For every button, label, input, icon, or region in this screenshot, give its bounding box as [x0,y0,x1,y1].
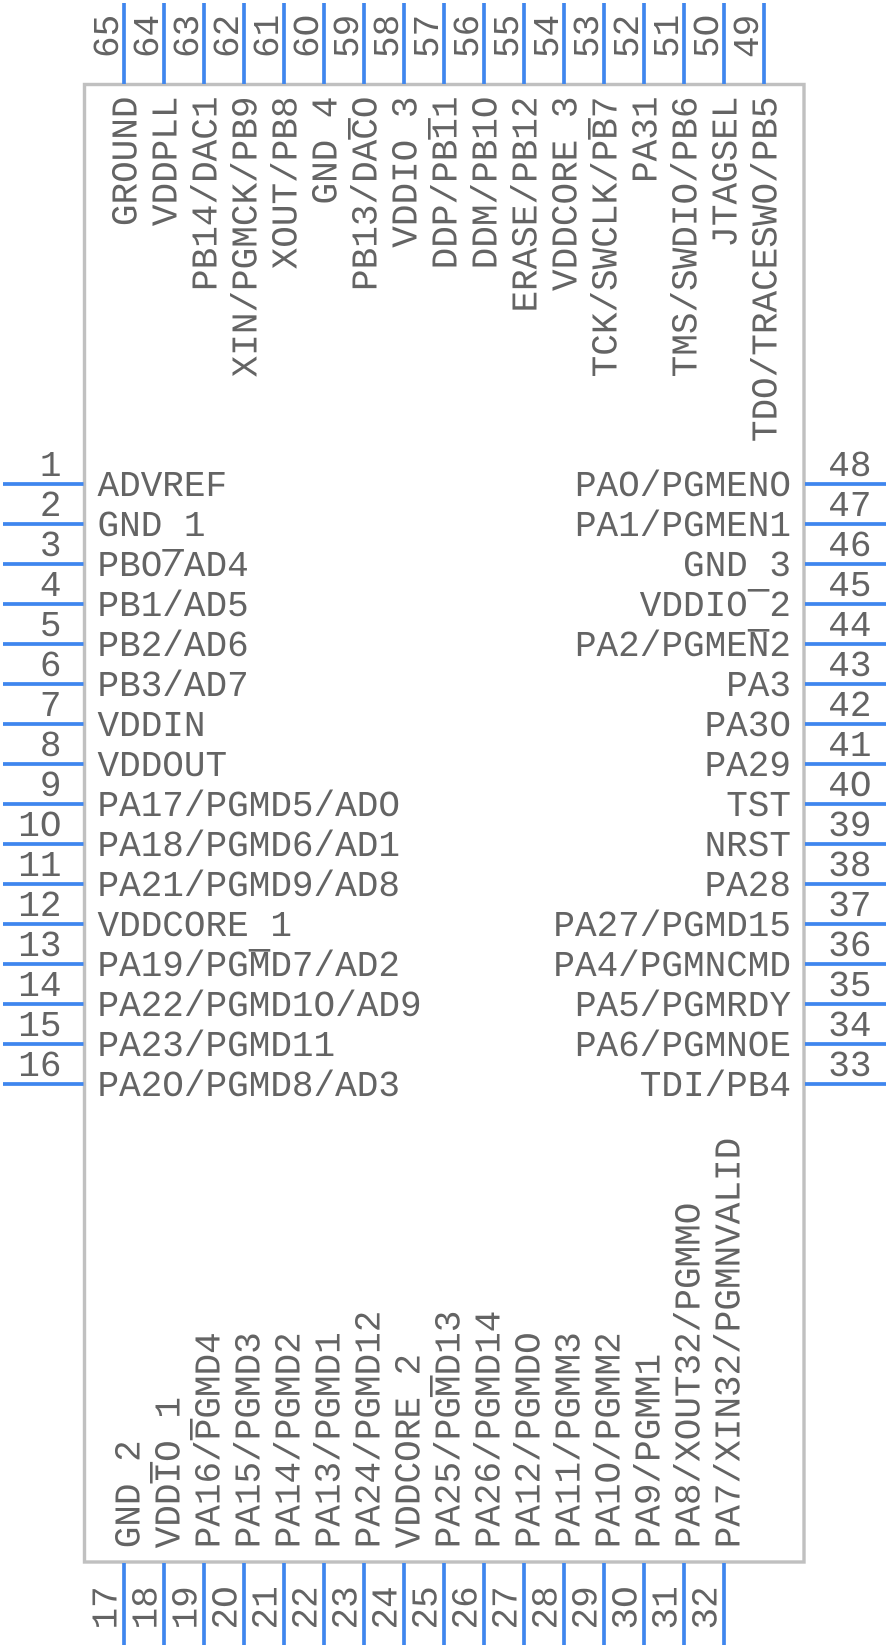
svg-text:TST: TST [726,786,791,827]
svg-text:PA12/PGMDO: PA12/PGMDO [510,1332,551,1548]
svg-text:62: 62 [208,15,249,58]
svg-text:4: 4 [40,566,62,607]
svg-text:12: 12 [18,886,61,927]
svg-text:65: 65 [88,15,129,58]
svg-text:PA31: PA31 [627,97,668,183]
svg-text:9: 9 [40,766,62,807]
svg-text:PA23/PGMD11: PA23/PGMD11 [98,1026,336,1067]
svg-text:49: 49 [728,15,769,58]
svg-text:VDDCORE 2: VDDCORE 2 [390,1354,431,1548]
svg-text:PB2/AD6: PB2/AD6 [98,626,249,667]
svg-text:6O: 6O [288,15,329,58]
svg-text:TCK/SWCLK/PB7: TCK/SWCLK/PB7 [587,97,628,378]
svg-text:8: 8 [40,726,62,767]
svg-text:64: 64 [128,15,169,58]
svg-text:59: 59 [328,15,369,58]
svg-text:57: 57 [408,15,449,58]
svg-text:PA19/PGMD7/AD2: PA19/PGMD7/AD2 [98,946,400,987]
svg-text:VDDCORE 3: VDDCORE 3 [547,97,588,291]
svg-text:ADVREF: ADVREF [98,466,228,507]
svg-text:26: 26 [446,1586,487,1629]
svg-text:GROUND: GROUND [107,97,148,227]
svg-text:2: 2 [40,486,62,527]
svg-text:63: 63 [168,15,209,58]
svg-text:PA9/PGMM1: PA9/PGMM1 [630,1354,671,1548]
svg-text:PA1O/PGMM2: PA1O/PGMM2 [590,1332,631,1548]
svg-text:VDDCORE 1: VDDCORE 1 [98,906,292,947]
svg-text:VDDIO 3: VDDIO 3 [387,97,428,248]
svg-text:4O: 4O [828,766,871,807]
svg-text:18: 18 [126,1586,167,1629]
svg-text:39: 39 [828,806,871,847]
svg-text:TDO/TRACESWO/PB5: TDO/TRACESWO/PB5 [747,97,788,443]
svg-text:3: 3 [40,526,62,567]
svg-text:15: 15 [18,1006,61,1047]
svg-text:PB3/AD7: PB3/AD7 [98,666,249,707]
svg-text:XOUT/PB8: XOUT/PB8 [267,97,308,270]
svg-text:PA27/PGMD15: PA27/PGMD15 [553,906,791,947]
svg-text:VDDIN: VDDIN [98,706,206,747]
svg-text:11: 11 [18,846,61,887]
svg-text:ERASE/PB12: ERASE/PB12 [507,97,548,313]
svg-text:PAO/PGMENO: PAO/PGMENO [575,466,791,507]
svg-text:TDI/PB4: TDI/PB4 [640,1066,791,1107]
svg-text:PA5/PGMRDY: PA5/PGMRDY [575,986,791,1027]
svg-text:51: 51 [648,15,689,58]
svg-text:27: 27 [486,1586,527,1629]
svg-text:14: 14 [18,966,61,1007]
svg-text:DDM/PB1O: DDM/PB1O [467,97,508,270]
svg-text:VDDPLL: VDDPLL [147,97,188,227]
svg-text:37: 37 [828,886,871,927]
svg-text:44: 44 [828,606,871,647]
svg-text:1O: 1O [18,806,61,847]
svg-text:PA8/XOUT32/PGMMO: PA8/XOUT32/PGMMO [670,1203,711,1549]
svg-text:47: 47 [828,486,871,527]
svg-text:PA22/PGMD1O/AD9: PA22/PGMD1O/AD9 [98,986,422,1027]
svg-text:PB1/AD5: PB1/AD5 [98,586,249,627]
svg-text:42: 42 [828,686,871,727]
svg-text:45: 45 [828,566,871,607]
svg-text:16: 16 [18,1046,61,1087]
svg-text:46: 46 [828,526,871,567]
svg-text:PA18/PGMD6/AD1: PA18/PGMD6/AD1 [98,826,400,867]
svg-text:PA3O: PA3O [705,706,791,747]
svg-text:PA24/PGMD12: PA24/PGMD12 [350,1311,391,1549]
svg-text:PA1/PGMEN1: PA1/PGMEN1 [575,506,791,547]
svg-text:1: 1 [40,446,62,487]
svg-text:6: 6 [40,646,62,687]
svg-text:5: 5 [40,606,62,647]
svg-text:PA29: PA29 [705,746,791,787]
svg-text:54: 54 [528,15,569,58]
svg-text:GND 4: GND 4 [307,97,348,205]
svg-text:43: 43 [828,646,871,687]
svg-text:VDDIO 2: VDDIO 2 [640,586,791,627]
svg-text:28: 28 [526,1586,567,1629]
svg-text:PA16/PGMD4: PA16/PGMD4 [190,1332,231,1548]
svg-text:19: 19 [166,1586,207,1629]
svg-text:34: 34 [828,1006,871,1047]
svg-text:PBO/AD4: PBO/AD4 [98,546,249,587]
svg-text:VDDOUT: VDDOUT [98,746,228,787]
svg-text:GND 3: GND 3 [683,546,791,587]
svg-text:2O: 2O [206,1586,247,1629]
svg-text:21: 21 [246,1586,287,1629]
svg-text:38: 38 [828,846,871,887]
svg-text:JTAGSEL: JTAGSEL [707,97,748,248]
svg-text:GND 1: GND 1 [98,506,206,547]
svg-text:48: 48 [828,446,871,487]
svg-text:23: 23 [326,1586,367,1629]
svg-text:17: 17 [86,1586,127,1629]
svg-text:PA21/PGMD9/AD8: PA21/PGMD9/AD8 [98,866,400,907]
svg-text:PA2O/PGMD8/AD3: PA2O/PGMD8/AD3 [98,1066,400,1107]
svg-text:22: 22 [286,1586,327,1629]
svg-text:55: 55 [488,15,529,58]
svg-text:53: 53 [568,15,609,58]
svg-text:TMS/SWDIO/PB6: TMS/SWDIO/PB6 [667,97,708,378]
svg-text:35: 35 [828,966,871,1007]
svg-text:PA11/PGMM3: PA11/PGMM3 [550,1332,591,1548]
svg-text:29: 29 [566,1586,607,1629]
svg-text:61: 61 [248,15,289,58]
svg-text:25: 25 [406,1586,447,1629]
svg-text:XIN/PGMCK/PB9: XIN/PGMCK/PB9 [227,97,268,378]
svg-text:36: 36 [828,926,871,967]
svg-text:NRST: NRST [705,826,791,867]
svg-text:DDP/PB11: DDP/PB11 [427,97,468,270]
svg-text:PB14/DAC1: PB14/DAC1 [187,97,228,291]
svg-text:33: 33 [828,1046,871,1087]
svg-text:PA4/PGMNCMD: PA4/PGMNCMD [553,946,791,987]
svg-text:58: 58 [368,15,409,58]
svg-text:PA3: PA3 [726,666,791,707]
svg-text:PA17/PGMD5/ADO: PA17/PGMD5/ADO [98,786,400,827]
svg-text:24: 24 [366,1586,407,1629]
svg-text:PA2/PGMEN2: PA2/PGMEN2 [575,626,791,667]
svg-text:PA6/PGMNOE: PA6/PGMNOE [575,1026,791,1067]
svg-text:VDDIO 1: VDDIO 1 [150,1397,191,1548]
svg-text:13: 13 [18,926,61,967]
svg-text:52: 52 [608,15,649,58]
svg-text:GND 2: GND 2 [110,1440,151,1548]
svg-text:PA26/PGMD14: PA26/PGMD14 [470,1311,511,1549]
svg-text:3O: 3O [606,1586,647,1629]
svg-text:PA13/PGMD1: PA13/PGMD1 [310,1332,351,1548]
svg-text:56: 56 [448,15,489,58]
svg-text:PA15/PGMD3: PA15/PGMD3 [230,1332,271,1548]
svg-text:PA14/PGMD2: PA14/PGMD2 [270,1332,311,1548]
svg-text:PA25/PGMD13: PA25/PGMD13 [430,1311,471,1549]
svg-text:PA7/XIN32/PGMNVALID: PA7/XIN32/PGMNVALID [710,1138,751,1548]
svg-text:41: 41 [828,726,871,767]
svg-text:PA28: PA28 [705,866,791,907]
svg-text:PB13/DACO: PB13/DACO [347,97,388,291]
svg-text:5O: 5O [688,15,729,58]
svg-text:7: 7 [40,686,62,727]
svg-text:32: 32 [686,1586,727,1629]
svg-text:31: 31 [646,1586,687,1629]
